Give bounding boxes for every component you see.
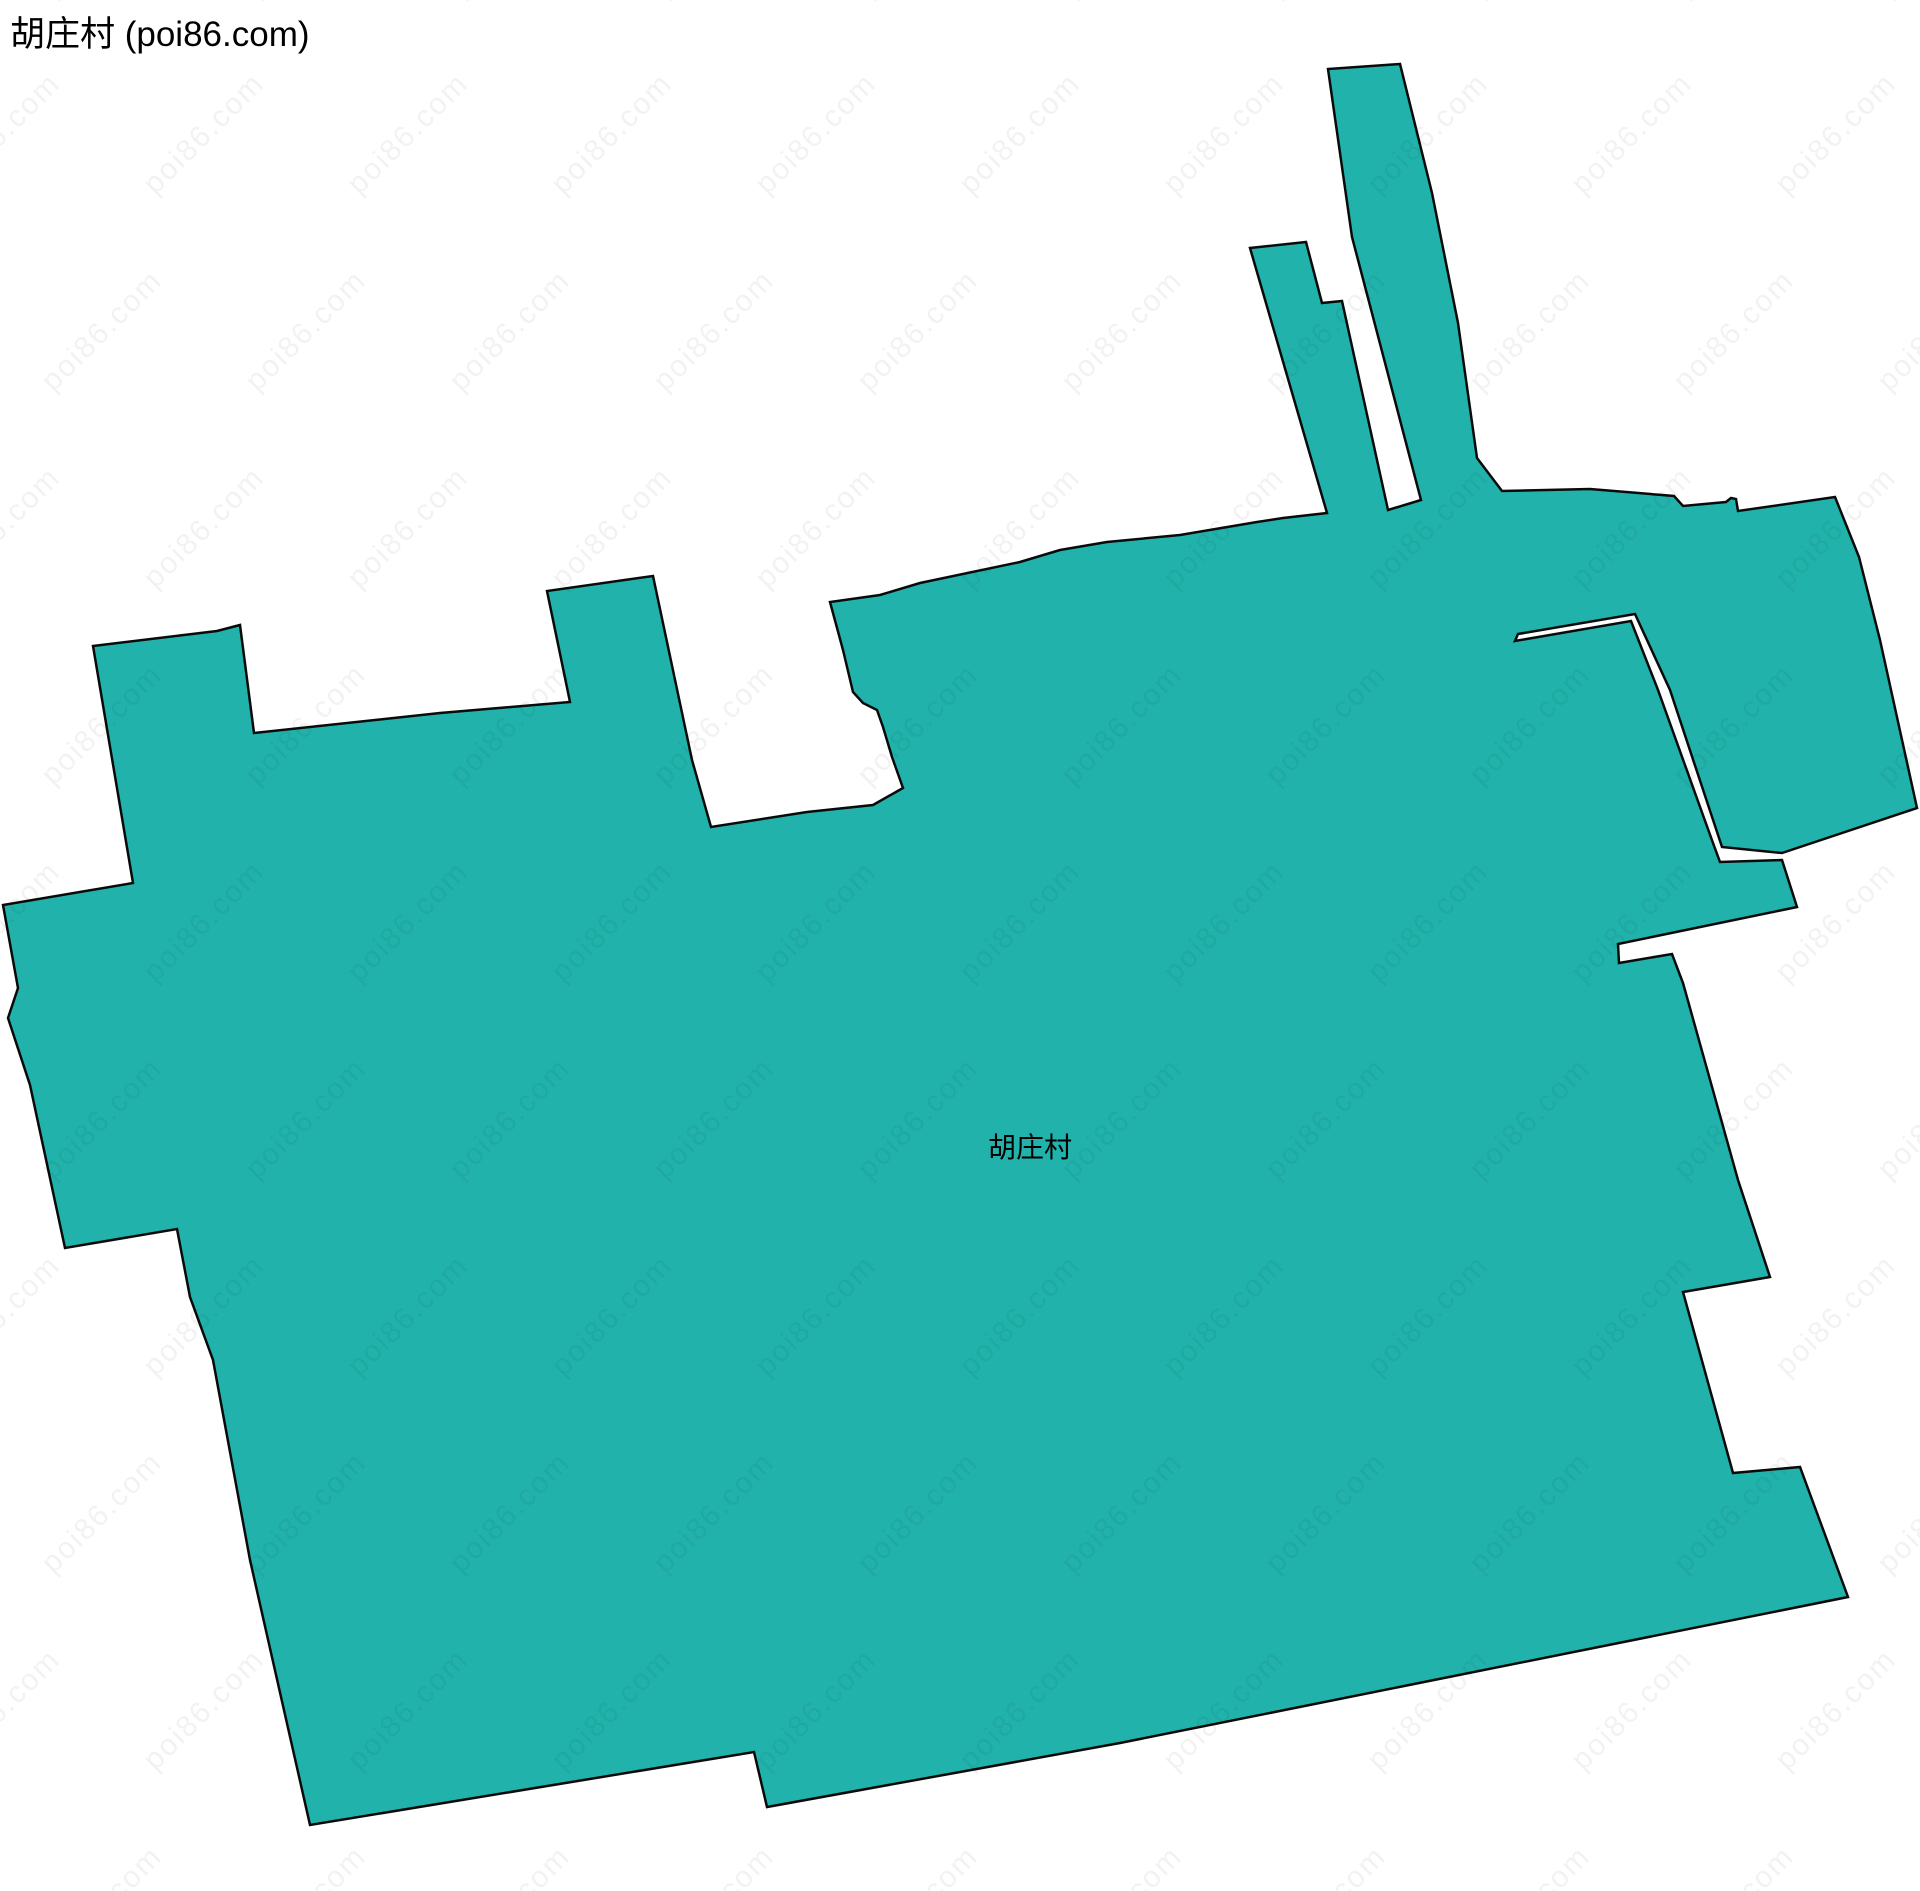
village-boundary-polygon[interactable] (3, 64, 1917, 1825)
region-label: 胡庄村 (988, 1126, 1072, 1166)
page-title: 胡庄村 (poi86.com) (10, 6, 310, 57)
map-page: poi86.compoi86.compoi86.compoi86.compoi8… (0, 0, 1920, 1891)
village-boundary-map (0, 0, 1920, 1891)
